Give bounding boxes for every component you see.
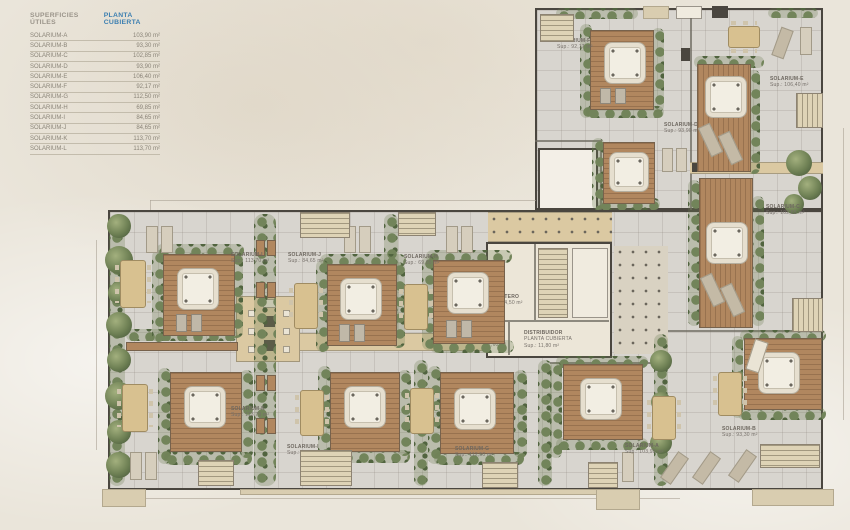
- solarium-name: SOLARIUM-F: [30, 84, 67, 90]
- solarium-l-label: SOLARIUM-LSup.: 113,70 m²: [231, 252, 269, 265]
- sun-lounger: [161, 226, 173, 253]
- sun-lounger: [662, 148, 673, 172]
- staircase: [792, 298, 823, 332]
- solarium-area: 84,65 m²: [136, 125, 160, 131]
- deck-planter: [446, 320, 457, 338]
- solarium-e-label: SOLARIUM-ESup.: 106,40 m²: [770, 76, 809, 89]
- parapet-line: [150, 200, 151, 210]
- dining-table: [404, 284, 428, 330]
- solarium-area: 93,90 m²: [136, 64, 160, 70]
- surface-table-row: SOLARIUM-G 112,50 m²: [30, 93, 160, 103]
- solarium-name: SOLARIUM-C: [30, 53, 68, 59]
- solarium-k-jacuzzi: [184, 386, 226, 428]
- dining-table: [652, 396, 676, 440]
- staircase: [398, 212, 436, 236]
- solarium-name: SOLARIUM-I: [30, 115, 65, 121]
- solarium-b-label: SOLARIUM-BSup.: 93,30 m²: [722, 426, 758, 439]
- sun-lounger: [146, 226, 158, 253]
- dining-table: [294, 283, 318, 329]
- staircase: [300, 212, 350, 238]
- surface-table-row: SOLARIUM-C 102,85 m²: [30, 52, 160, 62]
- dining-table: [728, 26, 760, 48]
- solarium-name: SOLARIUM-E: [30, 74, 67, 80]
- solarium-c-label: SOLARIUM-CSup.: 102,85 m²: [766, 204, 805, 217]
- solarium-d-label: SOLARIUM-DSup.: 93,90 m²: [664, 122, 700, 135]
- parapet-line: [150, 200, 536, 201]
- solarium-name: SOLARIUM-H: [30, 105, 68, 111]
- staircase: [540, 14, 574, 42]
- solarium-f-jacuzzi: [604, 42, 646, 84]
- sun-lounger: [446, 226, 458, 253]
- surface-table-row: SOLARIUM-J 84,65 m²: [30, 124, 160, 134]
- surface-table-row: SOLARIUM-F 92,17 m²: [30, 82, 160, 92]
- exterior-terrace: [752, 489, 834, 506]
- solarium-name: SOLARIUM-D: [30, 64, 68, 70]
- sun-lounger: [130, 452, 142, 480]
- roof-planter-hedge: [768, 8, 818, 18]
- solarium-e-jacuzzi: [705, 76, 747, 118]
- exterior-terrace: [596, 489, 640, 510]
- divider-deck-tile: [267, 418, 276, 434]
- tree: [107, 348, 131, 372]
- staircase: [198, 460, 234, 486]
- deck-planter: [615, 88, 626, 104]
- surface-table-row: SOLARIUM-L 113,70 m²: [30, 144, 160, 154]
- solarium-area: 92,17 m²: [136, 84, 160, 90]
- solarium-b-jacuzzi: [758, 352, 800, 394]
- sun-lounger: [359, 226, 371, 253]
- solarium-h-label: SOLARIUM-HSup.: 69,85 m²: [404, 254, 440, 267]
- core-staircase: [538, 248, 568, 318]
- solarium-area: 69,85 m²: [136, 105, 160, 111]
- divider-deck-tile: [256, 375, 265, 391]
- staircase: [300, 450, 352, 486]
- parapet-line: [96, 240, 97, 450]
- roof-equipment: [681, 48, 690, 61]
- deck-hedge: [514, 370, 527, 458]
- sun-lounger: [676, 148, 687, 172]
- solarium-name: SOLARIUM-L: [30, 146, 67, 152]
- solarium-area: 112,50 m²: [133, 94, 160, 100]
- solarium-a-label: SOLARIUM-ASup.: 103,90 m²: [625, 443, 664, 456]
- pergola-walkway: [488, 212, 612, 242]
- surface-table-header: SUPERFICIES ÚTILES PLANTA CUBIERTA: [30, 12, 160, 26]
- divider-deck-tile: [256, 282, 265, 298]
- tree: [798, 176, 822, 200]
- solarium-l-jacuzzi: [177, 268, 219, 310]
- roof-equipment: [712, 6, 728, 18]
- wall: [535, 140, 600, 142]
- solarium-g-jacuzzi: [454, 388, 496, 430]
- solarium-name: SOLARIUM-K: [30, 136, 67, 142]
- terrace-chair: [283, 346, 290, 353]
- surface-table-row: SOLARIUM-A 103,90 m²: [30, 31, 160, 41]
- surface-table-row: SOLARIUM-E 106,40 m²: [30, 72, 160, 82]
- sun-lounger: [145, 452, 157, 480]
- distribuidor-label: DISTRIBUIDOR PLANTA CUBIERTA Sup.: 11,80…: [524, 330, 572, 349]
- wall: [534, 244, 536, 320]
- surface-table: SUPERFICIES ÚTILES PLANTA CUBIERTA SOLAR…: [30, 12, 160, 155]
- dining-table: [410, 388, 434, 434]
- surface-table-row: SOLARIUM-B 93,30 m²: [30, 41, 160, 51]
- exterior-step: [240, 489, 620, 495]
- roof-void: [538, 148, 598, 210]
- tree: [650, 350, 672, 372]
- deck-planter: [191, 314, 202, 332]
- solarium-area: 106,40 m²: [133, 74, 160, 80]
- solarium-a-jacuzzi: [580, 378, 622, 420]
- deck-planter: [600, 88, 611, 104]
- solarium-d-jacuzzi: [609, 152, 649, 192]
- parapet-line: [843, 128, 844, 420]
- tree: [107, 214, 131, 238]
- divider-deck-tile: [267, 282, 276, 298]
- terrace-chair: [283, 328, 290, 335]
- divider-deck-tile: [267, 375, 276, 391]
- solarium-area: 113,70 m²: [133, 136, 160, 142]
- surface-table-row: SOLARIUM-H 69,85 m²: [30, 103, 160, 113]
- plan-level-title: PLANTA CUBIERTA: [104, 12, 160, 26]
- dining-table: [300, 390, 324, 436]
- staircase: [760, 444, 820, 468]
- staircase: [796, 93, 823, 128]
- solarium-name: SOLARIUM-B: [30, 43, 67, 49]
- solarium-i-jacuzzi: [344, 386, 386, 428]
- solarium-area: 93,30 m²: [136, 43, 160, 49]
- dining-table: [718, 372, 742, 416]
- floor-plan-page: SUPERFICIES ÚTILES PLANTA CUBIERTA SOLAR…: [0, 0, 850, 530]
- tree: [106, 452, 132, 478]
- staircase: [482, 462, 518, 488]
- solarium-area: 102,85 m²: [133, 53, 160, 59]
- dining-table: [120, 260, 146, 308]
- divider-deck-tile: [256, 418, 265, 434]
- surface-table-rows: SOLARIUM-A 103,90 m² SOLARIUM-B 93,30 m²…: [30, 31, 160, 155]
- deck-planter: [354, 324, 365, 342]
- wood-walkway: [126, 342, 238, 351]
- deck-planter: [461, 320, 472, 338]
- solarium-name: SOLARIUM-G: [30, 94, 68, 100]
- solarium-name: SOLARIUM-J: [30, 125, 66, 131]
- solarium-h-jacuzzi: [447, 272, 489, 314]
- surface-table-row: SOLARIUM-K 113,70 m²: [30, 134, 160, 144]
- solarium-k-label: SOLARIUM-KSup.: 113,70 m²: [231, 406, 269, 419]
- solarium-g-label: SOLARIUM-GSup.: 112,50 m²: [455, 446, 493, 459]
- exterior-terrace: [102, 489, 146, 507]
- solarium-c-jacuzzi: [706, 222, 748, 264]
- deck-planter: [339, 324, 350, 342]
- sun-lounger: [461, 226, 473, 253]
- roof-box: [643, 6, 669, 19]
- solarium-j-jacuzzi: [340, 278, 382, 320]
- solarium-area: 84,65 m²: [136, 115, 160, 121]
- skylight: [572, 248, 608, 318]
- surface-table-row: SOLARIUM-D 93,90 m²: [30, 62, 160, 72]
- dining-table: [122, 384, 148, 432]
- staircase: [588, 462, 618, 488]
- surface-table-row: SOLARIUM-I 84,65 m²: [30, 113, 160, 123]
- sun-lounger: [622, 452, 634, 482]
- sun-lounger: [800, 27, 812, 55]
- tree: [786, 150, 812, 176]
- solarium-name: SOLARIUM-A: [30, 33, 67, 39]
- solarium-j-label: SOLARIUM-JSup.: 84,65 m²: [288, 252, 324, 265]
- deck-hedge: [752, 196, 764, 326]
- deck-planter: [176, 314, 187, 332]
- solarium-area: 103,90 m²: [133, 33, 160, 39]
- wall: [488, 320, 609, 322]
- solarium-area: 113,70 m²: [133, 146, 160, 152]
- tree: [106, 312, 132, 338]
- roof-box: [676, 6, 702, 19]
- surface-table-title: SUPERFICIES ÚTILES: [30, 12, 94, 26]
